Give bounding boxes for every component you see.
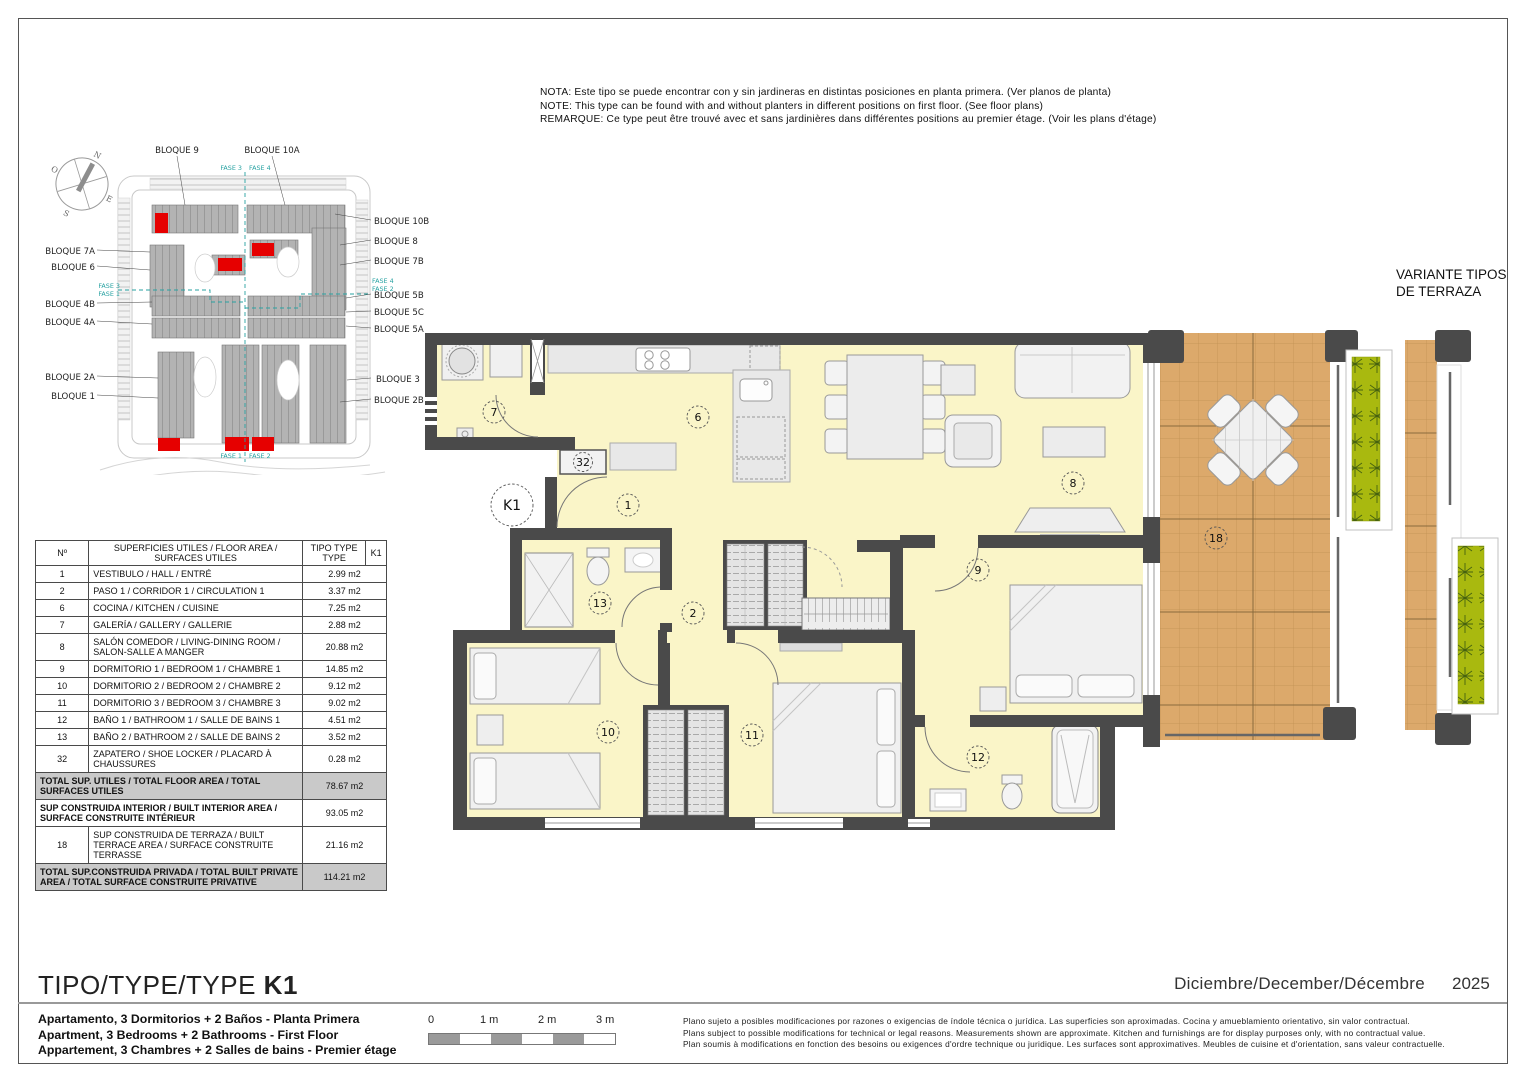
fase3-left: FASE 3 [98, 282, 120, 290]
sheet-title-text: TIPO/TYPE/TYPE [38, 970, 256, 1000]
note-line-fr: REMARQUE: Ce type peut être trouvé avec … [540, 113, 1156, 127]
fase4-top: FASE 4 [249, 164, 271, 172]
description-en: Apartment, 3 Bedrooms + 2 Bathrooms - Fi… [38, 1028, 396, 1044]
row-value: 14.85 m2 [303, 661, 387, 678]
row-no: 8 [36, 634, 89, 661]
room-number-gallery: 7 [491, 406, 498, 419]
table-row: 6COCINA / KITCHEN / CUISINE7.25 m2 [36, 600, 387, 617]
label-bloque-8: BLOQUE 8 [374, 237, 418, 247]
room-number-bedroom2: 10 [601, 726, 615, 739]
note-line-en: NOTE: This type can be found with and wi… [540, 100, 1156, 114]
row-no: 9 [36, 661, 89, 678]
room-number-kitchen: 6 [695, 411, 702, 424]
fase1-bottom: FASE 1 [220, 452, 242, 460]
row-label: ZAPATERO / SHOE LOCKER / PLACARD À CHAUS… [89, 746, 303, 773]
compass-n: N [92, 150, 102, 161]
disclaimer-fr: Plan soumis à modifications en fonction … [683, 1039, 1445, 1051]
row-no: 11 [36, 695, 89, 712]
sheet-type-code: K1 [264, 970, 298, 1000]
row-no: 18 [36, 827, 89, 864]
row-label: DORMITORIO 1 / BEDROOM 1 / CHAMBRE 1 [89, 661, 303, 678]
scale-label-3m: 3 m [596, 1014, 614, 1026]
disclaimer: Plano sujeto a posibles modificaciones p… [683, 1016, 1445, 1051]
row-label: DORMITORIO 3 / BEDROOM 3 / CHAMBRE 3 [89, 695, 303, 712]
room-number-shoe-locker: 32 [576, 456, 590, 469]
sheet-year: 2025 [1452, 974, 1490, 994]
fase2-bottom: FASE 2 [249, 452, 271, 460]
title-rule [18, 1002, 1507, 1004]
label-bloque-10a: BLOQUE 10A [244, 146, 299, 156]
room-number-terrace: 18 [1209, 532, 1223, 545]
built-interior-row: SUP CONSTRUIDA INTERIOR / BUILT INTERIOR… [36, 800, 387, 827]
variant-terrace-strip [1405, 330, 1498, 745]
row-label: PASO 1 / CORRIDOR 1 / CIRCULATION 1 [89, 583, 303, 600]
fase4-right: FASE 4 [372, 277, 394, 285]
label-bloque-7b: BLOQUE 7B [374, 257, 424, 267]
variant-title: VARIANTE TIPOS DE TERRAZA [1396, 266, 1507, 300]
col-header-no: Nº [36, 541, 89, 566]
row-label: GALERÍA / GALLERY / GALLERIE [89, 617, 303, 634]
row-value: 2.88 m2 [303, 617, 387, 634]
disclaimer-en: Plans subject to possible modifications … [683, 1028, 1445, 1040]
label-bloque-2b: BLOQUE 2B [374, 396, 424, 406]
label-bloque-9: BLOQUE 9 [155, 146, 199, 156]
disclaimer-es: Plano sujeto a posibles modificaciones p… [683, 1016, 1445, 1028]
plan-type-label: K1 [503, 498, 521, 514]
table-row: 7GALERÍA / GALLERY / GALLERIE2.88 m2 [36, 617, 387, 634]
row-value: 4.51 m2 [303, 712, 387, 729]
total-value: 114.21 m2 [303, 864, 387, 891]
col-header-k1: K1 [366, 541, 387, 566]
row-no: 13 [36, 729, 89, 746]
label-bloque-1: BLOQUE 1 [51, 392, 95, 402]
compass-s: S [62, 208, 71, 219]
terrace [1143, 330, 1392, 745]
apartment-description: Apartamento, 3 Dormitorios + 2 Baños - P… [38, 1012, 396, 1059]
label-bloque-5b: BLOQUE 5B [374, 291, 424, 301]
table-row: 2PASO 1 / CORRIDOR 1 / CIRCULATION 13.37… [36, 583, 387, 600]
total-private-row: TOTAL SUP.CONSTRUIDA PRIVADA / TOTAL BUI… [36, 864, 387, 891]
label-bloque-10b: BLOQUE 10B [374, 217, 429, 227]
room-number-corridor: 2 [690, 607, 697, 620]
total-label: TOTAL SUP. UTILES / TOTAL FLOOR AREA / T… [36, 773, 303, 800]
room-number-bedroom1: 9 [975, 564, 982, 577]
room-number-bedroom3: 11 [745, 729, 759, 742]
room-number-hall: 1 [625, 499, 632, 512]
row-value: 9.12 m2 [303, 678, 387, 695]
variant-title-line1: VARIANTE TIPOS [1396, 266, 1507, 283]
row-label: BAÑO 2 / BATHROOM 2 / SALLE DE BAINS 2 [89, 729, 303, 746]
row-value: 7.25 m2 [303, 600, 387, 617]
note-block: NOTA: Este tipo se puede encontrar con y… [540, 86, 1156, 127]
row-no: 12 [36, 712, 89, 729]
row-label: COCINA / KITCHEN / CUISINE [89, 600, 303, 617]
table-row: 32ZAPATERO / SHOE LOCKER / PLACARD À CHA… [36, 746, 387, 773]
label-bloque-4b: BLOQUE 4B [45, 300, 95, 310]
row-value: 3.37 m2 [303, 583, 387, 600]
built-label: SUP CONSTRUIDA INTERIOR / BUILT INTERIOR… [36, 800, 303, 827]
row-no: 32 [36, 746, 89, 773]
description-fr: Appartement, 3 Chambres + 2 Salles de ba… [38, 1043, 396, 1059]
row-no: 6 [36, 600, 89, 617]
scale-label-2m: 2 m [538, 1014, 556, 1026]
label-bloque-3: BLOQUE 3 [376, 375, 420, 385]
scale-bar-graphic [428, 1033, 616, 1045]
row-label: SALÓN COMEDOR / LIVING-DINING ROOM / SAL… [89, 634, 303, 661]
compass-rose: N O S E [40, 140, 129, 234]
table-row: 8SALÓN COMEDOR / LIVING-DINING ROOM / SA… [36, 634, 387, 661]
room-number-bath2: 13 [593, 597, 607, 610]
table-row: 9DORMITORIO 1 / BEDROOM 1 / CHAMBRE 114.… [36, 661, 387, 678]
scale-label-0: 0 [428, 1014, 434, 1026]
label-bloque-6: BLOQUE 6 [51, 263, 95, 273]
total-label: TOTAL SUP.CONSTRUIDA PRIVADA / TOTAL BUI… [36, 864, 303, 891]
site-buildings [150, 205, 346, 443]
scale-bar: 0 1 m 2 m 3 m [428, 1014, 628, 1048]
row-no: 1 [36, 566, 89, 583]
dining-set [825, 355, 945, 459]
table-row: 1VESTIBULO / HALL / ENTRÉ2.99 m2 [36, 566, 387, 583]
row-label: BAÑO 1 / BATHROOM 1 / SALLE DE BAINS 1 [89, 712, 303, 729]
site-plan: N O S E [40, 140, 450, 475]
built-value: 93.05 m2 [303, 800, 387, 827]
table-row: 12BAÑO 1 / BATHROOM 1 / SALLE DE BAINS 1… [36, 712, 387, 729]
room-number-living: 8 [1070, 477, 1077, 490]
row-no: 10 [36, 678, 89, 695]
floor-plan: 1 2 6 7 8 9 10 11 12 13 18 32 K1 [420, 325, 1505, 845]
area-table: Nº SUPERFICIES UTILES / FLOOR AREA / SUR… [35, 540, 387, 891]
col-header-type: TIPO TYPE TYPE [303, 541, 366, 566]
label-bloque-5c: BLOQUE 5C [374, 308, 424, 318]
total-utiles-row: TOTAL SUP. UTILES / TOTAL FLOOR AREA / T… [36, 773, 387, 800]
label-bloque-5a: BLOQUE 5A [374, 325, 424, 335]
row-value: 0.28 m2 [303, 746, 387, 773]
terrace-table-set [1205, 392, 1301, 488]
note-line-es: NOTA: Este tipo se puede encontrar con y… [540, 86, 1156, 100]
room-number-bath1: 12 [971, 751, 985, 764]
row-value: 21.16 m2 [303, 827, 387, 864]
row-label: VESTIBULO / HALL / ENTRÉ [89, 566, 303, 583]
row-label: SUP CONSTRUIDA DE TERRAZA / BUILT TERRAC… [89, 827, 303, 864]
fase1-left: FASE 1 [98, 290, 120, 298]
label-bloque-2a: BLOQUE 2A [45, 373, 95, 383]
table-row: 10DORMITORIO 2 / BEDROOM 2 / CHAMBRE 29.… [36, 678, 387, 695]
variant-title-line2: DE TERRAZA [1396, 283, 1507, 300]
description-es: Apartamento, 3 Dormitorios + 2 Baños - P… [38, 1012, 396, 1028]
row-label: DORMITORIO 2 / BEDROOM 2 / CHAMBRE 2 [89, 678, 303, 695]
sheet-date: Diciembre/December/Décembre [1145, 974, 1425, 994]
plan-sheet: NOTA: Este tipo se puede encontrar con y… [0, 0, 1526, 1080]
terrace-planter [1346, 350, 1392, 530]
table-row: 13BAÑO 2 / BATHROOM 2 / SALLE DE BAINS 2… [36, 729, 387, 746]
label-bloque-4a: BLOQUE 4A [45, 318, 95, 328]
table-header-row: Nº SUPERFICIES UTILES / FLOOR AREA / SUR… [36, 541, 387, 566]
total-value: 78.67 m2 [303, 773, 387, 800]
label-bloque-7a: BLOQUE 7A [45, 247, 95, 257]
row-value: 3.52 m2 [303, 729, 387, 746]
row-value: 9.02 m2 [303, 695, 387, 712]
scale-label-1m: 1 m [480, 1014, 498, 1026]
row-value: 20.88 m2 [303, 634, 387, 661]
table-row: 11DORMITORIO 3 / BEDROOM 3 / CHAMBRE 39.… [36, 695, 387, 712]
sheet-title: TIPO/TYPE/TYPE K1 [38, 970, 298, 1001]
terrace-area-row: 18SUP CONSTRUIDA DE TERRAZA / BUILT TERR… [36, 827, 387, 864]
row-value: 2.99 m2 [303, 566, 387, 583]
col-header-desc: SUPERFICIES UTILES / FLOOR AREA / SURFAC… [89, 541, 303, 566]
variant-planter [1452, 538, 1498, 714]
fase3-top: FASE 3 [220, 164, 242, 172]
row-no: 2 [36, 583, 89, 600]
row-no: 7 [36, 617, 89, 634]
